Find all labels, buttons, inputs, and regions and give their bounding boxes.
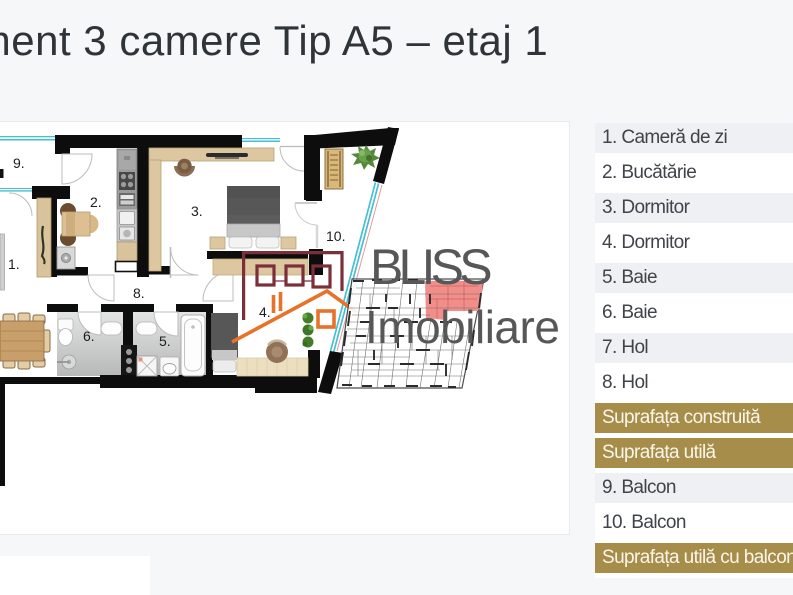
- svg-text:9.: 9.: [13, 155, 25, 171]
- svg-text:10.: 10.: [326, 228, 345, 244]
- svg-text:3.: 3.: [191, 203, 203, 219]
- svg-text:2.: 2.: [90, 194, 102, 210]
- svg-text:BLISS: BLISS: [370, 239, 491, 295]
- svg-text:5.: 5.: [159, 333, 171, 349]
- svg-text:1.: 1.: [8, 256, 20, 272]
- svg-text:Imobiliare: Imobiliare: [365, 301, 559, 353]
- svg-text:4.: 4.: [259, 304, 271, 320]
- svg-text:6.: 6.: [83, 328, 95, 344]
- svg-text:8.: 8.: [133, 285, 145, 301]
